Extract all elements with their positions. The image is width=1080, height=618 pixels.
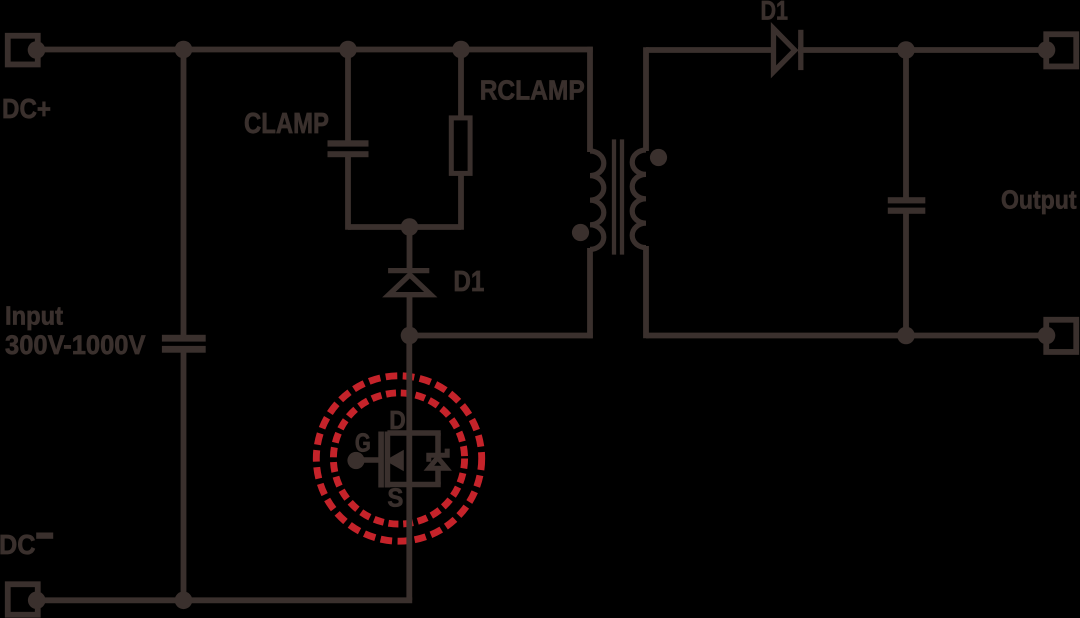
- svg-text:RCLAMP: RCLAMP: [480, 75, 585, 106]
- svg-text:DC: DC: [0, 529, 36, 560]
- svg-text:Input: Input: [5, 301, 63, 331]
- svg-text:CLAMP: CLAMP: [244, 108, 329, 140]
- svg-text:G: G: [355, 428, 371, 458]
- svg-text:Output: Output: [1001, 185, 1077, 215]
- svg-text:DC+: DC+: [2, 93, 51, 124]
- svg-text:300V-1000V: 300V-1000V: [5, 330, 146, 360]
- svg-text:D: D: [389, 405, 406, 435]
- svg-text:D1: D1: [761, 0, 789, 26]
- svg-text:S: S: [387, 483, 403, 513]
- svg-text:D1: D1: [453, 266, 484, 298]
